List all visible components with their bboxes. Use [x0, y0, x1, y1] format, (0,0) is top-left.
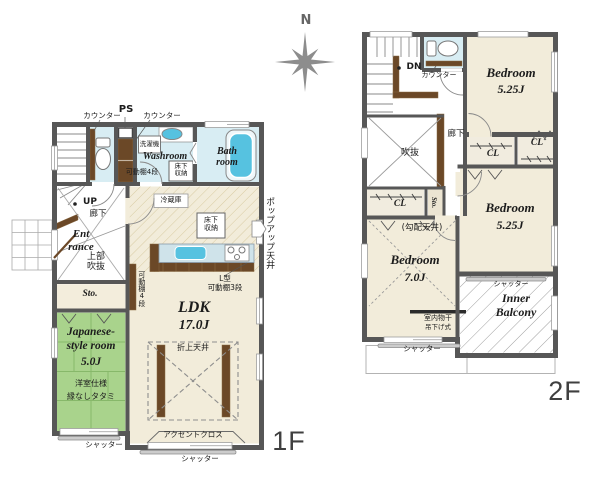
bathroom-name-line1: Bath: [199, 146, 255, 157]
closet-label-mid: CL: [478, 149, 508, 160]
shutter-label-ldk: シャッター: [178, 455, 222, 463]
counter-label-washroom: カウンター: [134, 112, 190, 120]
l-shelf-label-line2: 可動棚3段: [196, 284, 254, 292]
toilet-icon-2f: [427, 41, 458, 56]
bedroom-c-name: Bedroom: [386, 253, 444, 268]
kitchen-sink-icon: [175, 247, 206, 260]
floor2-label: 2F: [542, 376, 588, 406]
japanese-room-size: 5.0J: [57, 356, 125, 369]
compass-north-label: N: [297, 14, 315, 29]
up-marker-dot: [73, 202, 77, 206]
refrigerator-label: 冷蔵庫: [154, 197, 188, 205]
closet-label-right: CL: [522, 138, 552, 149]
inner-balcony-name-line2: Balcony: [486, 306, 546, 319]
bathroom-name-line2: room: [199, 157, 255, 168]
bedroom-c-size: 7.0J: [386, 271, 444, 284]
stairs-up-label: UP: [79, 197, 101, 207]
underfloor-storage-label-wash: 床下収納: [173, 163, 189, 178]
hanging-type-label: 吊下げ式: [419, 324, 457, 331]
toilet-icon-1f: [96, 138, 111, 170]
shutter-label-bedroom: シャッター: [400, 345, 444, 353]
stairs-down-icon: [367, 37, 417, 112]
popup-ceiling-label: ポップアップ天井: [264, 190, 274, 276]
bedroom-b-size: 5.25J: [479, 219, 541, 232]
underfloor-storage-label-kitchen: 床下収納: [203, 217, 219, 233]
entrance-name-line1: Ent: [56, 228, 106, 240]
washbasin-icon: [159, 127, 193, 142]
bedroom-b-name: Bedroom: [479, 201, 541, 216]
storage-name-1f: Sto.: [74, 289, 106, 300]
kitchen-counter: [159, 244, 254, 263]
shelf-label-top: 可動棚4段: [119, 169, 165, 177]
inner-balcony-name-line1: Inner: [486, 292, 546, 305]
entrance-porch-grid: [12, 220, 52, 270]
floorplan-canvas: N カウンター PS カウンター 洗濯機 Washroom 床下収納 可動棚4段…: [0, 0, 600, 483]
sloped-ceiling-label: (勾配天井): [392, 224, 452, 234]
compass-rose-icon: [275, 32, 335, 92]
hallway-label-2f: 廊下: [446, 130, 466, 140]
coffered-ceiling-label: 折上天井: [171, 344, 215, 353]
washroom-name: Washroom: [137, 151, 193, 162]
storage-name-2f: Sto.: [429, 191, 437, 215]
counter-label-2f: カウンター: [412, 72, 466, 80]
japanese-room-name-line1: Japanese-: [57, 326, 125, 339]
shutter-label-balcony: シャッター: [483, 281, 539, 289]
closet-label-hall: CL: [385, 199, 415, 210]
ldk-size: 17.0J: [168, 317, 220, 332]
pipe-space-box: [119, 128, 133, 138]
japanese-room-note2: 縁なしタタミ: [59, 393, 123, 402]
shutter-label-japanese: シャッター: [82, 441, 126, 449]
stove-icon: [225, 245, 249, 261]
void-label-2f: 吹抜: [395, 148, 425, 158]
upper-void-label: 上部吹抜: [86, 252, 106, 272]
floor1-label: 1F: [266, 426, 312, 456]
bedroom-a-size: 5.25J: [478, 83, 544, 96]
dn-marker-dot: [397, 66, 401, 70]
japanese-room-note1: 洋室仕様: [63, 380, 119, 389]
accent-cloth-label: アクセントクロス: [158, 431, 228, 439]
ldk-name: LDK: [168, 299, 220, 317]
hallway-label-1f: 廊下: [85, 210, 111, 220]
bedroom-a-name: Bedroom: [478, 66, 544, 81]
washing-machine-label: 洗濯機: [138, 141, 161, 148]
japanese-room-name-line2: style room: [57, 340, 125, 353]
shelf-label-wall: 可動棚4段: [137, 266, 145, 312]
indoor-drying-label: 室内物干: [415, 315, 461, 323]
